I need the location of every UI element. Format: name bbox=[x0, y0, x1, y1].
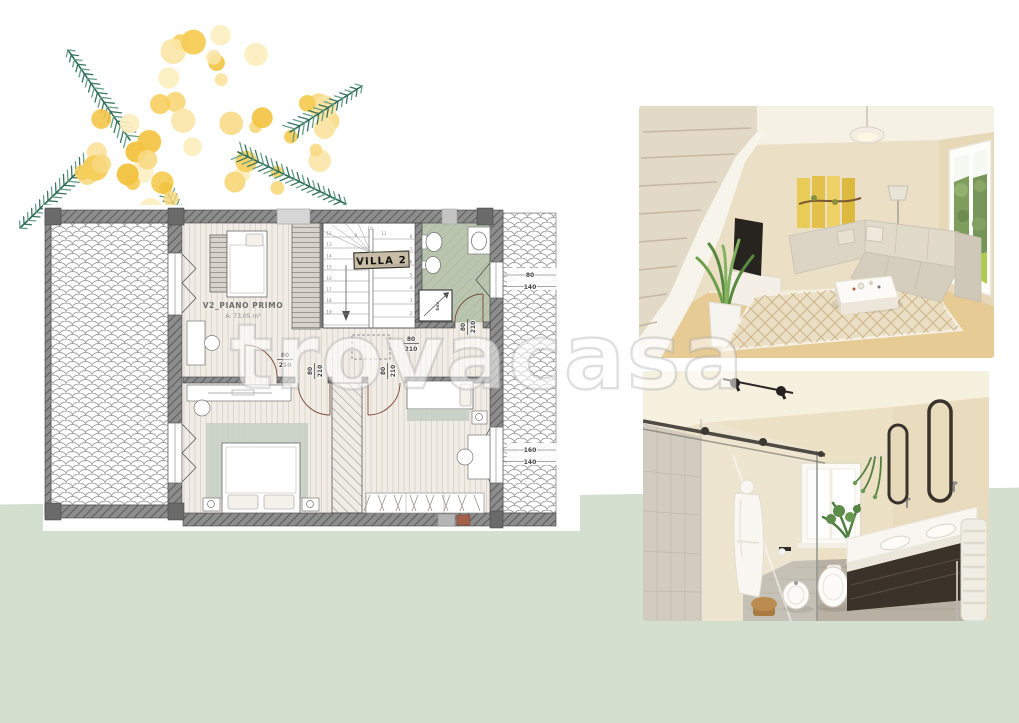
plan-title: V2_PIANO PRIMO bbox=[203, 301, 283, 310]
wall-artwork bbox=[797, 176, 861, 228]
stair-step-number: 10 bbox=[367, 226, 373, 231]
towel-radiator bbox=[957, 519, 987, 621]
bench bbox=[407, 409, 469, 421]
stair-step-number: 17 bbox=[326, 287, 332, 292]
living-room-render-photo bbox=[639, 106, 994, 358]
stair-step-number: 2 bbox=[410, 311, 413, 316]
villa-label-text: VILLA 2 bbox=[356, 255, 407, 268]
bidet bbox=[426, 257, 441, 274]
stair-step-number: 15 bbox=[326, 265, 332, 270]
floor-plan: VILLA 2 V2_PIANO PRIMO A: 73,05 m² box 8… bbox=[40, 195, 585, 540]
stair-step-number: 3 bbox=[410, 298, 413, 303]
pillow bbox=[246, 234, 263, 246]
svg-text:140: 140 bbox=[524, 284, 537, 291]
svg-text:210: 210 bbox=[390, 365, 397, 378]
nightstand bbox=[302, 498, 319, 511]
coffee-table bbox=[831, 276, 903, 315]
wooden-stool bbox=[751, 597, 777, 616]
pillow bbox=[460, 384, 471, 406]
stair-step-number: 18 bbox=[326, 298, 332, 303]
svg-text:210: 210 bbox=[317, 365, 324, 378]
svg-text:80: 80 bbox=[307, 367, 314, 375]
dim-label-bathroom-window: 80 140 bbox=[503, 268, 557, 291]
dim-label-bedroom-window: 160 140 bbox=[503, 443, 557, 466]
chimney-block bbox=[457, 515, 470, 525]
bathrobe bbox=[734, 480, 764, 597]
bidet bbox=[783, 581, 809, 609]
svg-text:160: 160 bbox=[524, 447, 537, 454]
stair-step-number: 4 bbox=[410, 285, 413, 290]
stair-step-number: 6 bbox=[410, 260, 413, 265]
chair bbox=[194, 400, 210, 416]
top-wall-block bbox=[442, 209, 457, 224]
stair-step-number: 5 bbox=[410, 272, 413, 277]
chair bbox=[205, 336, 220, 351]
toilet bbox=[426, 233, 442, 252]
chair bbox=[457, 449, 473, 465]
desk bbox=[187, 321, 205, 365]
stair-step-number: 7 bbox=[410, 247, 413, 252]
svg-text:80: 80 bbox=[407, 336, 415, 343]
plan-area: A: 73,05 m² bbox=[225, 313, 261, 320]
living-room-scene bbox=[639, 106, 994, 358]
pillow bbox=[264, 495, 294, 509]
svg-text:210: 210 bbox=[279, 362, 292, 369]
center-wall bbox=[332, 383, 362, 513]
stair-step-number: 8 bbox=[410, 234, 413, 239]
svg-text:80: 80 bbox=[281, 352, 289, 359]
stair-step-number: 12 bbox=[326, 231, 332, 236]
svg-text:80: 80 bbox=[526, 272, 534, 279]
floor-plan-drawing: VILLA 2 V2_PIANO PRIMO A: 73,05 m² box 8… bbox=[40, 195, 585, 540]
svg-text:80: 80 bbox=[460, 323, 467, 331]
wardrobe bbox=[210, 235, 227, 292]
bathroom-render-photo bbox=[643, 371, 989, 621]
closet-strip bbox=[292, 223, 320, 329]
pillow bbox=[228, 495, 258, 509]
closet-wall bbox=[320, 223, 323, 328]
left-roof-terrace bbox=[51, 223, 168, 505]
villa-label: VILLA 2 bbox=[354, 251, 410, 269]
svg-text:210: 210 bbox=[470, 321, 477, 334]
stair-step-number: 14 bbox=[326, 253, 332, 258]
stair-step-number: 9 bbox=[355, 233, 358, 238]
nightstand bbox=[203, 498, 220, 511]
mimosa-flower-cluster bbox=[150, 25, 273, 156]
sofa-pillow bbox=[837, 229, 855, 245]
sofa-pillow bbox=[866, 226, 883, 242]
stair-step-number: 16 bbox=[326, 276, 332, 281]
svg-text:80: 80 bbox=[380, 367, 387, 375]
svg-text:210: 210 bbox=[405, 346, 418, 353]
real-estate-collage: VILLA 2 V2_PIANO PRIMO A: 73,05 m² box 8… bbox=[0, 0, 1019, 723]
bathroom-scene bbox=[643, 371, 989, 621]
stair-step-number: 11 bbox=[381, 231, 387, 236]
svg-text:140: 140 bbox=[524, 459, 537, 466]
shower-label: box bbox=[435, 301, 441, 310]
stair-skylight bbox=[277, 209, 310, 224]
sink bbox=[472, 232, 487, 250]
stair-step-number: 13 bbox=[326, 242, 332, 247]
right-roof-strip bbox=[503, 213, 556, 513]
stair-step-number: 19 bbox=[326, 309, 332, 314]
bottom-wall-block bbox=[438, 514, 455, 526]
nightstand bbox=[472, 411, 487, 424]
